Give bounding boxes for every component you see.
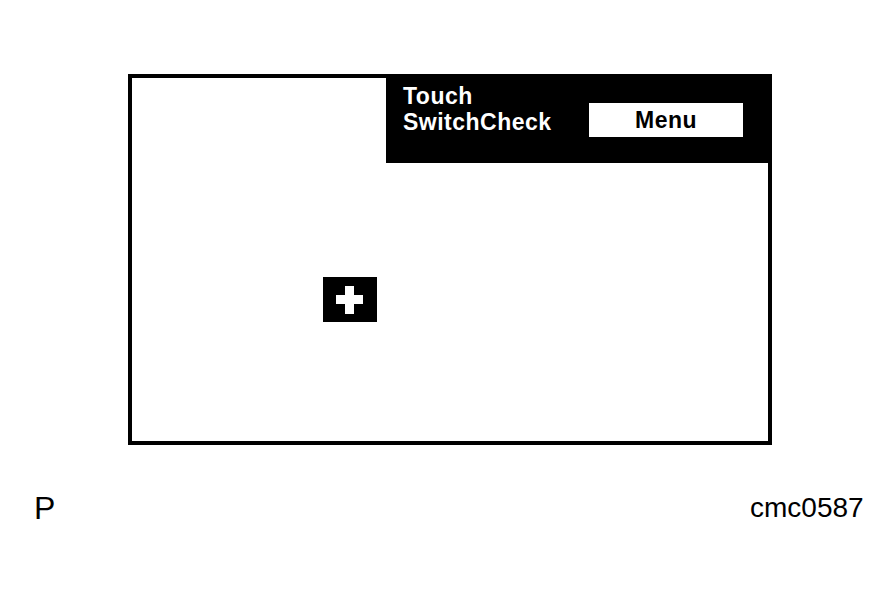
menu-button[interactable]: Menu	[589, 103, 743, 137]
screen-title: TouchSwitchCheck	[403, 83, 552, 135]
touch-check-target[interactable]	[323, 277, 377, 322]
figure-code-label: cmc0587	[750, 493, 864, 523]
plus-crosshair-icon	[323, 277, 377, 322]
screen-title-line2: SwitchCheck	[403, 109, 552, 135]
screen-title-line1: Touch	[403, 83, 473, 109]
screen-header-bar: TouchSwitchCheck Menu	[386, 74, 772, 163]
page-marker-label: P	[34, 492, 56, 524]
